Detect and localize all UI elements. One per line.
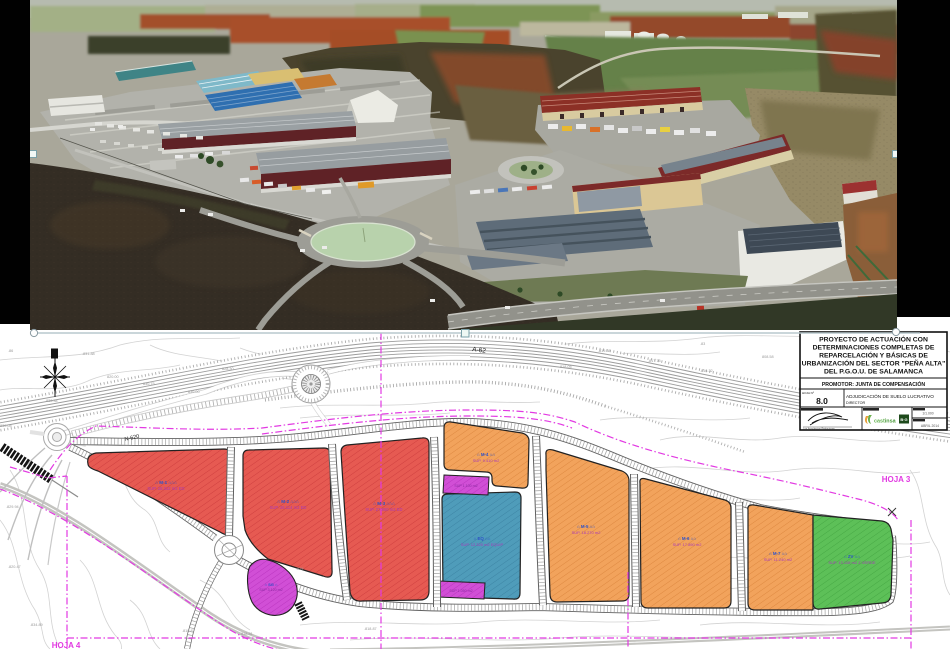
- svg-text:DIRECTOR: DIRECTOR: [846, 401, 866, 405]
- svg-text:.818.87: .818.87: [182, 629, 195, 633]
- svg-text:SUP 3.120 m2: SUP 3.120 m2: [259, 588, 282, 592]
- svg-text:.83: .83: [700, 342, 705, 346]
- svg-text:⌂ M-7 ⌂⌂: ⌂ M-7 ⌂⌂: [769, 551, 787, 556]
- svg-text:SUP. 11.240 m2: SUP. 11.240 m2: [764, 557, 793, 562]
- svg-text:SUP. 18.270 m2: SUP. 18.270 m2: [572, 530, 602, 535]
- svg-text:.817.75: .817.75: [648, 359, 661, 363]
- svg-text:⌂ EQ ⌂⌂: ⌂ EQ ⌂⌂: [474, 536, 491, 541]
- svg-text:⌂ M-5 ⌂⌂: ⌂ M-5 ⌂⌂: [577, 524, 595, 529]
- svg-text:⌂ M-3 ⌂⌂⌂: ⌂ M-3 ⌂⌂⌂: [373, 501, 395, 506]
- svg-text:SUP 1.050 m2: SUP 1.050 m2: [449, 589, 472, 593]
- svg-text:SUP. 27.850 m2 ED: SUP. 27.850 m2 ED: [365, 507, 402, 512]
- svg-text:⌂ ZV ⌂⌂: ⌂ ZV ⌂⌂: [844, 554, 860, 559]
- svg-text:REPARCELACIÓN Y BÁSICAS DE: REPARCELACIÓN Y BÁSICAS DE: [819, 351, 928, 360]
- svg-text:SUP. 28.342 m2 ED: SUP. 28.342 m2 ED: [147, 486, 184, 491]
- svg-text:⌂ M-1 ⌂⌂⌂: ⌂ M-1 ⌂⌂⌂: [155, 480, 177, 485]
- svg-text:.816.32: .816.32: [700, 369, 713, 373]
- svg-text:⌂ M-6 ⌂⌂: ⌂ M-6 ⌂⌂: [678, 536, 696, 541]
- svg-text:castinsa: castinsa: [874, 419, 897, 425]
- svg-text:1/1.000: 1/1.000: [922, 412, 933, 416]
- svg-text:HOJA Nº: HOJA Nº: [802, 391, 815, 395]
- svg-text:8.0: 8.0: [816, 396, 828, 406]
- svg-text:PROMOTOR: JUNTA DE COMPENSACIÓ: PROMOTOR: JUNTA DE COMPENSACIÓN: [822, 380, 926, 388]
- svg-text:830.08: 830.08: [0, 424, 12, 428]
- svg-text:.831.88: .831.88: [82, 352, 95, 356]
- svg-text:ABRIL 2014: ABRIL 2014: [921, 424, 939, 428]
- svg-text:.818.81: .818.81: [240, 632, 253, 636]
- svg-text:SUP 1.100 m2: SUP 1.100 m2: [454, 484, 477, 488]
- svg-text:.818.87: .818.87: [364, 627, 377, 631]
- svg-text:828.30: 828.30: [222, 367, 234, 371]
- svg-text:Los Arquitectos Redactores: Los Arquitectos Redactores: [803, 427, 835, 431]
- svg-text:.819.38: .819.38: [598, 349, 611, 353]
- svg-text:820.00: 820.00: [107, 375, 119, 379]
- svg-text:.820.47: .820.47: [8, 565, 21, 569]
- svg-text:HOJA 3: HOJA 3: [882, 475, 911, 484]
- svg-text:818.05: 818.05: [560, 365, 572, 369]
- svg-text:.830.34: .830.34: [45, 399, 58, 403]
- svg-text:ADJUDICACIÓN DE SUELO LUCRATIV: ADJUDICACIÓN DE SUELO LUCRATIVO: [846, 393, 934, 399]
- svg-text:SUP. 9.410 m2: SUP. 9.410 m2: [473, 458, 500, 463]
- svg-text:B·G: B·G: [900, 417, 907, 422]
- svg-text:808.58: 808.58: [762, 355, 774, 359]
- svg-text:URBANIZACIÓN DEL SECTOR "PEÑA: URBANIZACIÓN DEL SECTOR "PEÑA ALTA": [802, 359, 946, 368]
- svg-text:SUP. 26.114 m2 ED: SUP. 26.114 m2 ED: [270, 505, 307, 510]
- svg-text:DEL P.G.O.U. DE SALAMANCA: DEL P.G.O.U. DE SALAMANCA: [824, 369, 923, 376]
- svg-text:.819: .819: [296, 567, 303, 571]
- svg-text:⌂ M-4 ⌂⌂: ⌂ M-4 ⌂⌂: [477, 452, 495, 457]
- svg-text:HOJA 4: HOJA 4: [52, 641, 81, 649]
- svg-text:PROYECTO DE ACTUACIÓN CON: PROYECTO DE ACTUACIÓN CON: [819, 335, 928, 344]
- svg-text:.834.89: .834.89: [30, 623, 43, 627]
- svg-text:.829.94: .829.94: [6, 505, 19, 509]
- svg-text:⌂ M-2 ⌂⌂⌂: ⌂ M-2 ⌂⌂⌂: [277, 499, 299, 504]
- svg-text:SUP. 13.108 m2 Z.VERDE: SUP. 13.108 m2 Z.VERDE: [828, 560, 876, 565]
- svg-text:SUP. 12.320 m2 EQUIP: SUP. 12.320 m2 EQUIP: [461, 542, 504, 547]
- svg-text:⌂ SG ⌂: ⌂ SG ⌂: [265, 582, 278, 587]
- svg-text:830.75: 830.75: [143, 382, 155, 386]
- svg-text:DETERMINACIONES COMPLETAS DE: DETERMINACIONES COMPLETAS DE: [813, 345, 935, 352]
- svg-text:830.00: 830.00: [188, 390, 200, 394]
- svg-text:SUP. 17.890 m2: SUP. 17.890 m2: [673, 542, 703, 547]
- svg-text:.86: .86: [8, 349, 13, 353]
